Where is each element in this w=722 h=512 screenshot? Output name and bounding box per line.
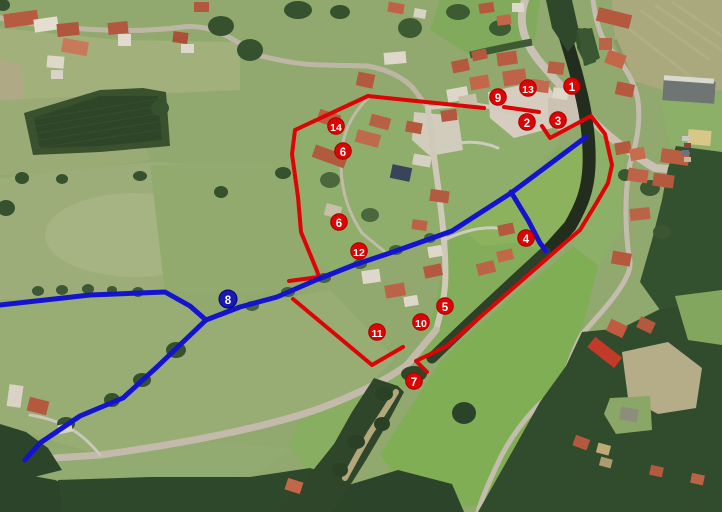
svg-text:10: 10 [415, 318, 427, 330]
svg-text:6: 6 [340, 147, 346, 159]
svg-text:1: 1 [569, 82, 576, 94]
svg-text:5: 5 [442, 302, 449, 314]
svg-text:9: 9 [495, 93, 501, 105]
svg-text:6: 6 [336, 218, 342, 230]
svg-text:3: 3 [555, 116, 561, 128]
svg-text:14: 14 [330, 122, 342, 134]
svg-text:2: 2 [524, 118, 530, 130]
svg-text:8: 8 [225, 295, 232, 307]
svg-text:7: 7 [411, 377, 417, 389]
svg-text:13: 13 [522, 84, 534, 96]
svg-text:11: 11 [371, 328, 382, 340]
svg-text:4: 4 [523, 234, 530, 246]
svg-text:12: 12 [353, 247, 365, 259]
